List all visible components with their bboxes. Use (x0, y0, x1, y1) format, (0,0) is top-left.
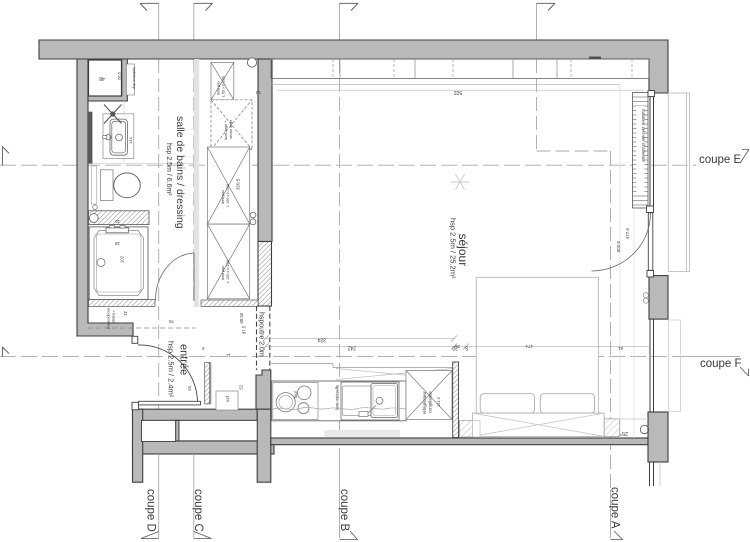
svg-text:48: 48 (99, 75, 105, 81)
svg-text:242: 242 (347, 345, 356, 351)
svg-text:L 100 x h 236: L 100 x h 236 (226, 260, 230, 283)
svg-text:salle de bains / dressing: salle de bains / dressing (174, 116, 186, 229)
svg-text:16: 16 (115, 219, 120, 224)
svg-text:20: 20 (452, 345, 458, 351)
svg-text:coupe E: coupe E (699, 154, 742, 166)
svg-text:hsp 2.5m / 6.6m²: hsp 2.5m / 6.6m² (165, 143, 172, 196)
svg-text:coupe A: coupe A (609, 487, 621, 529)
svg-text:réfrigérateur: réfrigérateur (422, 391, 427, 414)
svg-text:70: 70 (168, 319, 174, 324)
svg-text:L 100 x h 236: L 100 x h 236 (226, 184, 230, 207)
svg-text:ikéa pax: ikéa pax (221, 190, 225, 204)
svg-text:coupe D: coupe D (145, 489, 157, 532)
svg-text:L 50 x h 236: L 50 x h 236 (222, 76, 226, 97)
svg-text:320.5: 320.5 (236, 178, 241, 190)
svg-text:477.5: 477.5 (625, 228, 630, 240)
svg-text:hsp 2.5m / 2.4m²: hsp 2.5m / 2.4m² (167, 341, 176, 398)
svg-text:18: 18 (255, 90, 261, 95)
svg-text:324: 324 (317, 337, 326, 343)
svg-text:radiateur zehnder charleston: radiateur zehnder charleston (641, 109, 646, 163)
svg-text:sèche linge: sèche linge (229, 120, 233, 139)
svg-text:récupérateur: récupérateur (107, 308, 111, 330)
svg-text:congélateur: congélateur (428, 391, 433, 413)
svg-text:ikéa pax: ikéa pax (221, 266, 225, 280)
svg-text:144: 144 (128, 137, 133, 144)
svg-text:66.5: 66.5 (117, 71, 122, 80)
svg-text:four: four (293, 390, 298, 398)
svg-text:31: 31 (123, 311, 128, 316)
svg-text:lave-vaisselle: lave-vaisselle (335, 384, 340, 410)
svg-text:87.5: 87.5 (242, 325, 247, 334)
svg-text:52: 52 (239, 384, 244, 389)
svg-text:coupe B: coupe B (338, 489, 350, 532)
svg-text:151.5: 151.5 (436, 396, 441, 407)
svg-text:102: 102 (120, 255, 125, 263)
svg-text:502.5: 502.5 (616, 241, 621, 253)
svg-text:hspoutre 2.0m: hspoutre 2.0m (258, 312, 265, 357)
svg-text:64: 64 (187, 385, 192, 390)
svg-text:502: 502 (454, 89, 463, 95)
svg-text:12: 12 (226, 353, 231, 358)
svg-text:coupe F: coupe F (700, 358, 742, 370)
svg-text:lave-linge +: lave-linge + (224, 120, 228, 140)
svg-text:+ balais: + balais (112, 310, 116, 323)
svg-text:hsp 2.5m / 25.2m²: hsp 2.5m / 25.2m² (449, 218, 458, 279)
svg-text:88.58: 88.58 (239, 312, 244, 323)
svg-text:5: 5 (465, 345, 468, 351)
svg-text:coupe C: coupe C (192, 489, 204, 532)
svg-text:18: 18 (114, 241, 120, 246)
svg-text:ikéa pax: ikéa pax (217, 81, 221, 95)
svg-text:radiateur dcp: radiateur dcp (132, 67, 136, 89)
svg-text:ecf: ecf (225, 395, 230, 401)
